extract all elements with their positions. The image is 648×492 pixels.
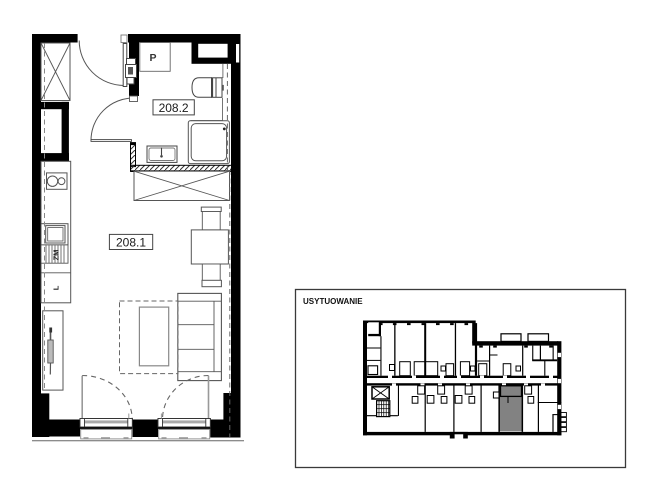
svg-text:USYTUOWANIE: USYTUOWANIE	[303, 297, 363, 306]
svg-text:L: L	[52, 285, 61, 290]
svg-text:P: P	[149, 52, 156, 64]
svg-text:ZM: ZM	[52, 250, 61, 261]
svg-text:208.2: 208.2	[159, 101, 189, 115]
svg-text:208.1: 208.1	[116, 235, 146, 249]
